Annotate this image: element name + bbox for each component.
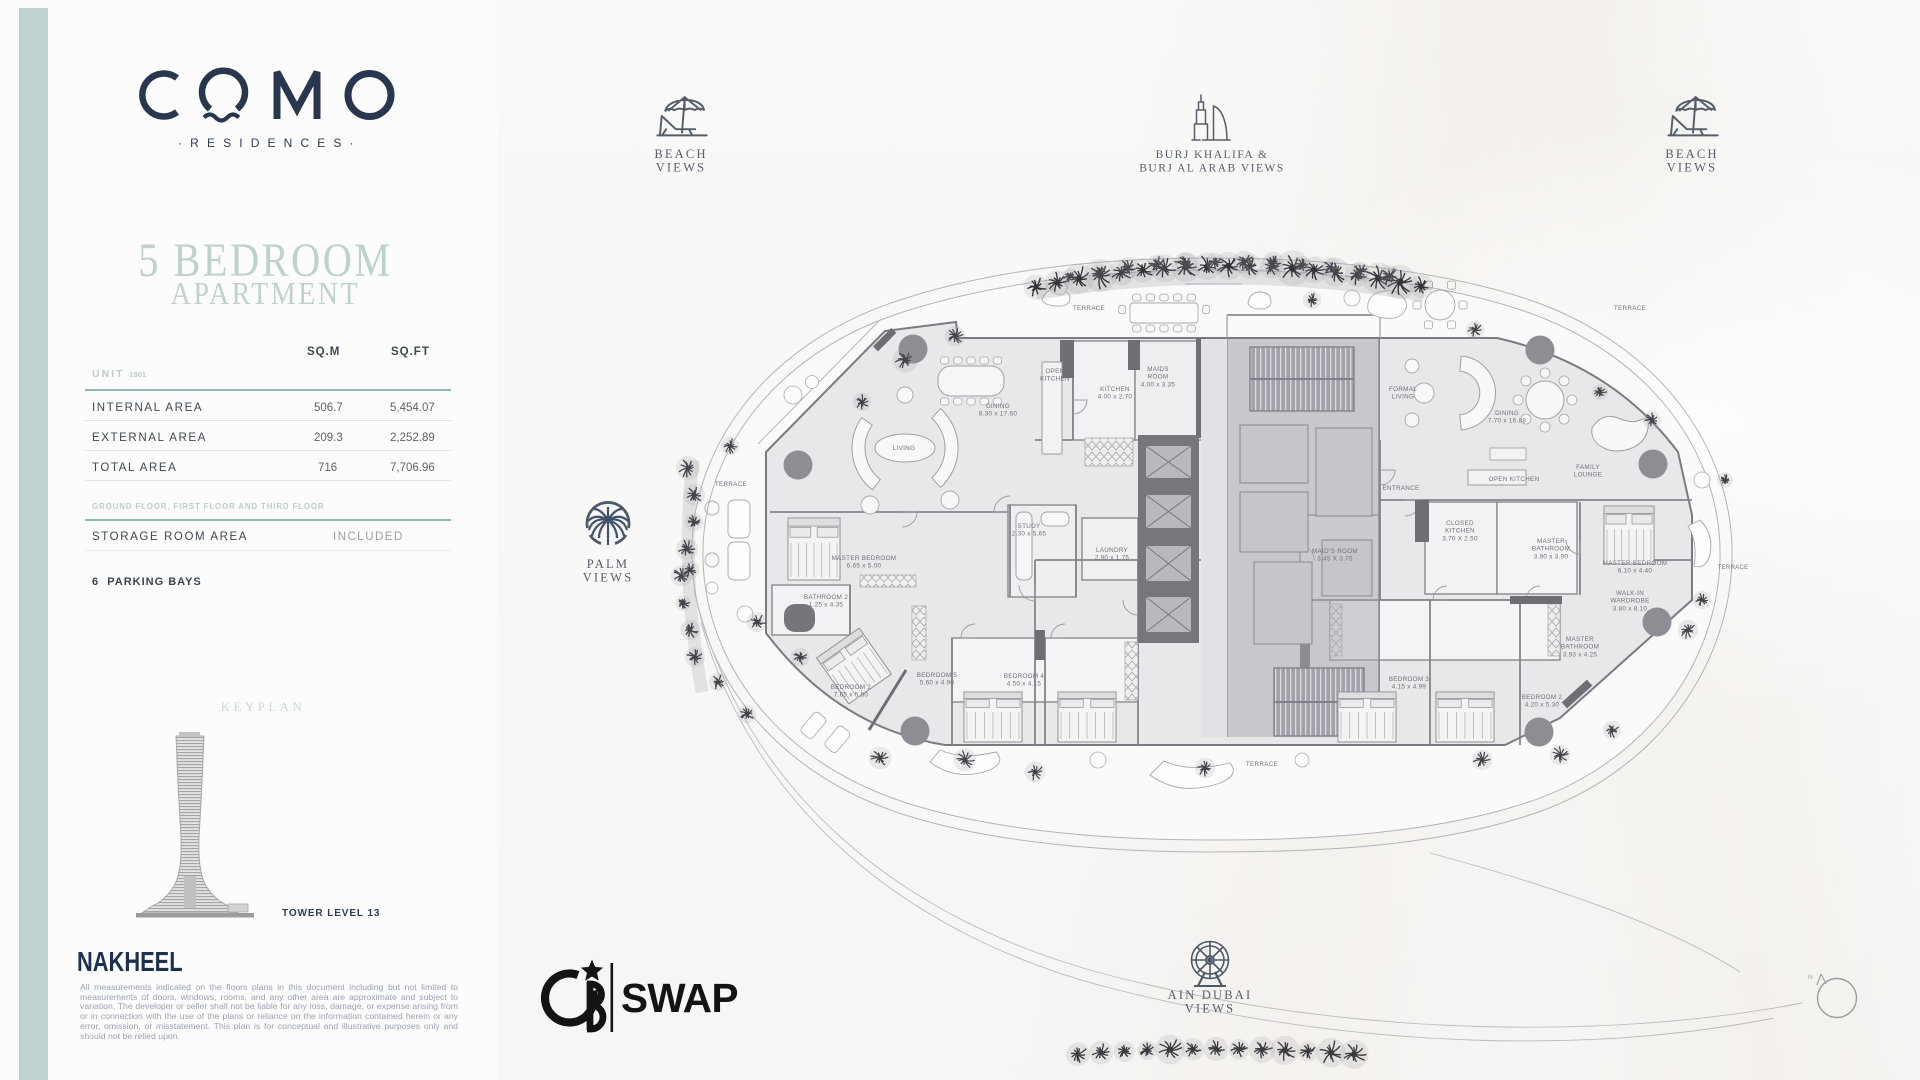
svg-text:BEDROOM 2: BEDROOM 2 [1522, 694, 1563, 701]
svg-text:ROOM: ROOM [1148, 374, 1169, 381]
svg-text:OPEN KITCHEN: OPEN KITCHEN [1489, 476, 1540, 483]
svg-text:BURJ AL ARAB VIEWS: BURJ AL ARAB VIEWS [1139, 163, 1285, 175]
svg-text:ENTRANCE: ENTRANCE [1382, 485, 1419, 492]
svg-text:TERRACE: TERRACE [1614, 305, 1646, 312]
svg-text:TERRACE: TERRACE [715, 481, 747, 488]
svg-text:SWAP: SWAP [621, 975, 738, 1021]
svg-text:BEDROOM 3: BEDROOM 3 [1389, 676, 1430, 683]
svg-text:7.70 x 16.88: 7.70 x 16.88 [1488, 418, 1526, 425]
svg-text:LIVING: LIVING [1392, 394, 1414, 401]
svg-text:TERRACE: TERRACE [1718, 565, 1749, 571]
svg-text:DINING: DINING [1495, 410, 1519, 417]
svg-text:VIEWS: VIEWS [583, 571, 634, 585]
svg-text:6.10 x 4.40: 6.10 x 4.40 [1618, 568, 1653, 575]
svg-text:1.25 x 4.35: 1.25 x 4.35 [809, 602, 844, 609]
svg-text:BEDROOM 4: BEDROOM 4 [1004, 673, 1045, 680]
svg-text:BEACH: BEACH [654, 147, 707, 161]
svg-text:VIEWS: VIEWS [1185, 1002, 1236, 1016]
svg-text:MASTER: MASTER [1566, 636, 1594, 643]
svg-text:8.30 x 17.60: 8.30 x 17.60 [979, 411, 1017, 418]
svg-text:TERRACE: TERRACE [1073, 305, 1105, 312]
svg-text:KITCHEN: KITCHEN [1100, 386, 1130, 393]
svg-text:FAMILY: FAMILY [1576, 464, 1600, 471]
svg-text:OPEN: OPEN [1045, 368, 1064, 375]
svg-text:6.65 x 5.00: 6.65 x 5.00 [847, 563, 882, 570]
svg-text:DINING: DINING [986, 403, 1010, 410]
svg-text:MASTER: MASTER [1537, 538, 1565, 545]
svg-text:MASTER BEDROOM: MASTER BEDROOM [1603, 560, 1668, 567]
svg-text:AIN DUBAI: AIN DUBAI [1168, 988, 1253, 1002]
svg-text:MAIDS: MAIDS [1147, 366, 1168, 373]
svg-text:4.20 x 5.30: 4.20 x 5.30 [1525, 702, 1560, 709]
svg-text:BATHROOM 2: BATHROOM 2 [804, 594, 848, 601]
svg-text:LOUNGE: LOUNGE [1574, 472, 1602, 479]
svg-text:BEACH: BEACH [1665, 147, 1718, 161]
svg-text:LIVING: LIVING [893, 445, 915, 452]
svg-text:CLOSED: CLOSED [1446, 520, 1474, 527]
svg-text:3.93 x 4.25: 3.93 x 4.25 [1563, 651, 1598, 658]
svg-text:2.90 x 1.75: 2.90 x 1.75 [1095, 555, 1130, 562]
svg-text:4.15 x 4.99: 4.15 x 4.99 [1392, 684, 1427, 691]
svg-text:PALM: PALM [587, 557, 629, 571]
svg-text:5.60 x 4.90: 5.60 x 4.90 [920, 680, 955, 687]
svg-text:MAID’S ROOM: MAID’S ROOM [1312, 548, 1358, 555]
svg-text:STUDY: STUDY [1018, 523, 1041, 530]
svg-text:LAUNDRY: LAUNDRY [1096, 547, 1129, 554]
svg-text:4.00 x 3.35: 4.00 x 3.35 [1141, 381, 1176, 388]
svg-text:BEDROOM 5: BEDROOM 5 [917, 672, 958, 679]
svg-text:VIEWS: VIEWS [1667, 161, 1718, 175]
svg-text:3.70 X 2.50: 3.70 X 2.50 [1442, 535, 1478, 542]
svg-text:KITCHEN: KITCHEN [1445, 528, 1475, 535]
svg-text:4.00 x 2.70: 4.00 x 2.70 [1098, 394, 1133, 401]
svg-text:BEDROOM 2: BEDROOM 2 [831, 684, 872, 691]
svg-text:4.50 x 4.15: 4.50 x 4.15 [1007, 681, 1042, 688]
svg-text:TERRACE: TERRACE [1246, 761, 1278, 768]
svg-text:3.45 X 3.75: 3.45 X 3.75 [1317, 556, 1353, 563]
svg-text:FORMAL: FORMAL [1389, 386, 1417, 393]
svg-text:WALK-IN: WALK-IN [1616, 590, 1644, 597]
svg-text:7.65 x 5.50: 7.65 x 5.50 [834, 692, 869, 699]
svg-text:KITCHEN: KITCHEN [1040, 376, 1070, 383]
svg-text:BATHROOM: BATHROOM [1532, 546, 1570, 553]
svg-text:VIEWS: VIEWS [656, 161, 707, 175]
svg-text:3.80 x 8.10: 3.80 x 8.10 [1613, 605, 1648, 612]
svg-text:WARDROBE: WARDROBE [1610, 598, 1649, 605]
svg-text:BATHROOM: BATHROOM [1561, 644, 1599, 651]
svg-text:N: N [1808, 974, 1813, 981]
svg-text:3.90 x 3.90: 3.90 x 3.90 [1534, 553, 1569, 560]
svg-text:MASTER BEDROOM: MASTER BEDROOM [832, 555, 897, 562]
svg-text:2.30 x 5.65: 2.30 x 5.65 [1012, 531, 1047, 538]
svg-text:BURJ KHALIFA &: BURJ KHALIFA & [1156, 149, 1269, 161]
